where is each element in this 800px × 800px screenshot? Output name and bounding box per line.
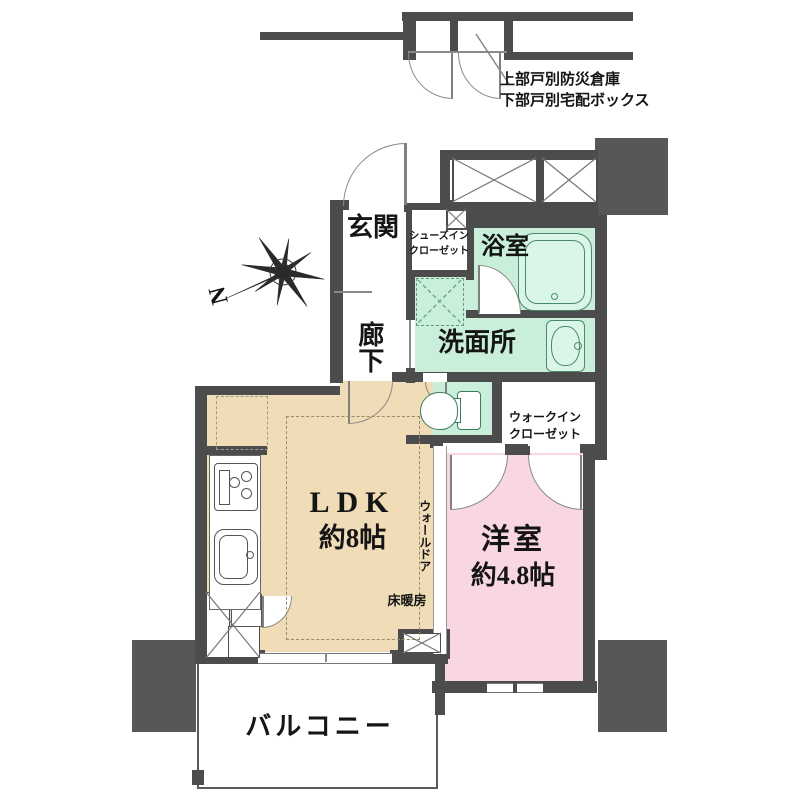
- compass-rose: N: [204, 235, 325, 308]
- bathroom-door-leaf: [478, 265, 480, 313]
- wall-right-upper: [595, 215, 607, 460]
- corridor-wall: [260, 32, 405, 40]
- kitchen-sink-bowl: [219, 535, 248, 579]
- label-bathroom: 浴室: [474, 234, 536, 262]
- label-ldk-line2: 約8帖: [295, 523, 410, 554]
- stove-burner: [241, 488, 252, 499]
- balcony-corner-tick: [192, 770, 204, 785]
- label-wic: ウォークイン クローゼット: [503, 411, 587, 442]
- shaft-box: [452, 158, 538, 204]
- label-ldk-line1: LDK: [295, 486, 410, 521]
- label-genkan: 玄関: [340, 213, 406, 243]
- toilet-door-opening: [423, 373, 447, 382]
- label-balcony: バルコニー: [245, 712, 395, 742]
- ldk-window-mullion: [325, 653, 327, 662]
- toilet-bowl: [420, 392, 458, 430]
- corridor-wall: [507, 52, 633, 60]
- stove-burner: [229, 477, 240, 488]
- bathtub-drain: [551, 293, 558, 300]
- wall-bedroom-top-stub: [505, 446, 530, 455]
- bedroom-door-leaf: [450, 455, 452, 509]
- wall-bath-top: [466, 210, 598, 228]
- label-sic: シューズイン クローゼット: [409, 231, 469, 257]
- bedroom-window: [487, 683, 513, 693]
- washing-machine-pan: [416, 278, 464, 326]
- stove-burner: [241, 471, 252, 482]
- cabinet-door-leaf: [451, 53, 453, 98]
- label-floor-heating: 床暖房: [381, 594, 433, 609]
- floor-plan: N 上部戸別防災倉庫 下部戸別宅配ボックス 玄関 シューズイン クローゼット 浴…: [0, 0, 800, 800]
- wall-right-lower: [583, 455, 595, 692]
- pillar-shaft-bottom: [228, 626, 260, 658]
- label-wall-door: ウォールドア: [417, 486, 431, 586]
- wic-door-leaf: [580, 455, 582, 509]
- corridor-wall: [450, 20, 458, 53]
- storage-note-line1: 上部戸別防災倉庫: [500, 72, 670, 89]
- structure-block-top-right: [595, 138, 668, 215]
- wall-bedroom-bottom: [432, 681, 597, 693]
- shaft-box: [542, 158, 598, 204]
- label-wic-line1: ウォークイン: [503, 411, 587, 425]
- corridor-wall: [402, 12, 633, 21]
- label-sic-line1: シューズイン: [409, 231, 469, 243]
- label-bedroom: 洋室 約4.8帖: [453, 524, 573, 591]
- shaft-box-small: [446, 209, 468, 230]
- label-ldk: LDK 約8帖: [295, 486, 410, 554]
- bedroom-entry-nook: [443, 443, 505, 453]
- storage-note: 上部戸別防災倉庫 下部戸別宅配ボックス: [500, 72, 670, 111]
- label-washroom: 洗面所: [432, 328, 522, 358]
- stove-grill: [219, 470, 230, 505]
- cabinet-door-arc: [458, 53, 501, 99]
- storage-note-line2: 下部戸別宅配ボックス: [500, 93, 670, 110]
- structure-block-bottom-left: [132, 640, 196, 732]
- washroom-sliding-door: [409, 320, 411, 368]
- genkan-step-line: [334, 291, 372, 293]
- cabinet-door-arc: [408, 53, 453, 99]
- entry-door-arc: [343, 143, 406, 206]
- label-wic-line2: クローゼット: [503, 428, 587, 442]
- compass-north-label: N: [204, 283, 234, 307]
- label-hallway: 廊下: [354, 312, 384, 382]
- label-sic-line2: クローゼット: [409, 246, 469, 258]
- label-bedroom-line1: 洋室: [453, 524, 573, 557]
- label-bedroom-line2: 約4.8帖: [453, 561, 573, 591]
- refrigerator-space: [216, 396, 268, 450]
- wall-ldk-top: [195, 386, 340, 395]
- entry-door-leaf: [404, 143, 407, 205]
- washroom-door-opening: [406, 320, 415, 368]
- kitchen-faucet: [246, 551, 254, 559]
- service-door-leaf: [262, 596, 264, 627]
- wall-door-track: [433, 446, 447, 654]
- structure-block-bottom-right: [598, 640, 667, 732]
- washbasin-faucet: [574, 342, 582, 350]
- bedroom-window: [517, 683, 543, 693]
